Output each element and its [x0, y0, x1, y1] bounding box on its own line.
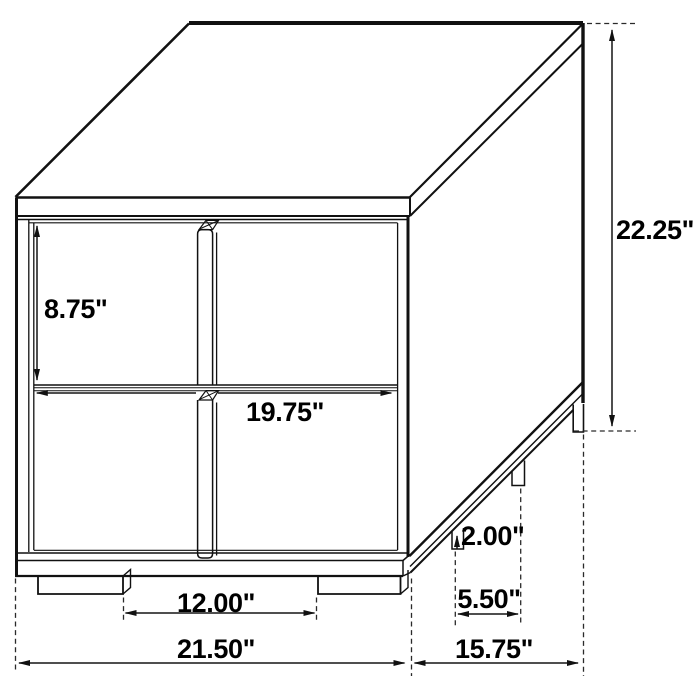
- dimension-diagram: 8.75" 19.75" 22.25" 12.00" 21.50" 2.00" …: [0, 0, 700, 700]
- extension-lines: [16, 24, 637, 677]
- top-right-edge: [410, 24, 583, 198]
- top-face: [16, 23, 584, 198]
- dimension-label-drawer-width: 19.75": [246, 399, 324, 426]
- feet: [38, 404, 584, 594]
- dimension-label-foot-height: 2.00": [461, 523, 524, 550]
- handle-bottom-bar: [198, 400, 213, 558]
- plinth-front: [15, 555, 411, 577]
- dimension-label-side-feet-spacing: 5.50": [457, 586, 520, 613]
- foot-front-left-bevel: [123, 570, 131, 595]
- slab-side-bottom-edge: [410, 44, 583, 217]
- drawer-divider: [34, 385, 398, 391]
- dimension-label-overall-height: 22.25": [616, 217, 694, 244]
- tabletop-slab: [16, 44, 584, 217]
- handle-top-drawer: [198, 220, 219, 385]
- handle-top-bar: [198, 230, 213, 385]
- foot-front-left: [38, 576, 123, 594]
- dimension-label-drawer-height: 8.75": [44, 296, 107, 323]
- dimension-label-overall-width: 21.50": [177, 636, 255, 663]
- dimension-label-front-feet-spacing: 12.00": [177, 590, 255, 617]
- foot-front-right: [318, 576, 401, 594]
- plinth-corner-bottom: [403, 573, 411, 577]
- dimension-label-overall-depth: 15.75": [455, 636, 533, 663]
- nightstand-line-drawing: [0, 0, 700, 700]
- dimension-lines: [19, 30, 612, 663]
- top-left-edge: [16, 24, 190, 198]
- foot-back-right: [573, 404, 583, 432]
- handle-bottom-drawer: [198, 391, 219, 558]
